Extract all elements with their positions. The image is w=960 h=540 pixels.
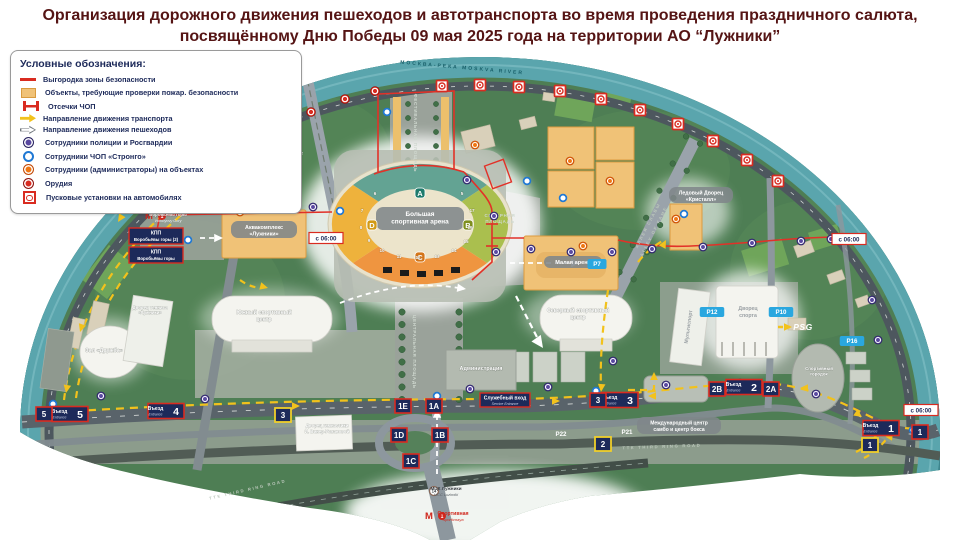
legend-item-label: Сотрудники полиции и Росгвардии (45, 138, 172, 147)
station-name-en: MCC Luzhniki (434, 492, 458, 497)
chop-marker (524, 178, 531, 185)
arena-gate-number: 16 (467, 225, 473, 230)
legend-item-label: Направление движения транспорта (43, 114, 173, 123)
time-badge: с 06:00 (904, 405, 938, 416)
admin-marker (606, 177, 614, 185)
zone-box-text: 1E (398, 402, 408, 411)
legend-item-label: Сотрудники (администраторы) на объектах (45, 165, 203, 174)
police-marker (544, 383, 552, 391)
building-south-sport-center (212, 296, 332, 342)
zone-box-text: 5 (42, 410, 47, 419)
chop-marker (185, 237, 192, 244)
zone-box-text: 2B (712, 385, 722, 394)
kpp-line2: Воробьёвы горы (2) (134, 237, 179, 242)
entrance-en: Entrance (148, 413, 162, 417)
launcher-marker (555, 86, 566, 97)
tree (405, 129, 410, 134)
police-marker (874, 336, 882, 344)
venue-label: Аквакомплекс«Лужники» (231, 221, 297, 238)
police-marker (492, 248, 500, 256)
entrance-en: Entrance (726, 389, 740, 393)
police-marker (201, 395, 209, 403)
route-box-text: 3 (281, 411, 286, 420)
kpp-line1: КПП (151, 231, 162, 237)
map-label: СЕВЕРНАЯПЛОЩАДЬ (484, 213, 515, 224)
station-name-en: Vorobyovy Gory (154, 219, 182, 223)
station-name-ru: МЦК Лужники (430, 486, 461, 491)
guns-icon (23, 178, 34, 189)
tree (399, 359, 405, 365)
parking-label-P7: P7 (588, 259, 607, 269)
parking-label-P16: P16 (840, 336, 865, 346)
time-badge-text: с 06:00 (316, 235, 338, 242)
entrance-box-4: ВъездEntrance4 (148, 404, 184, 419)
entrance-number: 5 (77, 409, 83, 421)
launcher-dot (559, 90, 561, 92)
police-marker (662, 381, 670, 389)
arena-gate-number: 10 (379, 248, 385, 253)
entrance-number: 3 (627, 395, 633, 407)
legend-item-label: Направление движения пешеходов (43, 125, 171, 134)
zone-box-5: 5 (36, 407, 52, 421)
tree (433, 129, 438, 134)
launcher-marker (475, 80, 486, 91)
legend-item: Сотрудники полиции и Росгвардии (20, 137, 292, 148)
tree (456, 334, 462, 340)
zone-box-3: 3 (590, 393, 606, 407)
launcher-marker (742, 155, 753, 166)
arena-sector-letter: D (369, 221, 375, 230)
chop-marker (560, 195, 567, 202)
entrance-number: 1 (888, 423, 894, 435)
service-ru: Служебный вход (484, 395, 527, 402)
launcher-dot (441, 85, 443, 87)
launcher-dot (479, 84, 481, 86)
map-label: ФЕСТИВАЛЬНАЯ ПЛОЩАДЬ (413, 94, 418, 172)
time-badge: с 06:00 (309, 233, 343, 244)
entrance-ru: Въезд (863, 423, 880, 429)
gun-marker (341, 95, 350, 104)
police-marker (97, 392, 105, 400)
security-line-icon (20, 74, 36, 84)
parking-text: P16 (846, 338, 858, 345)
luzhniki-traffic-scheme: Большаяспортивная аренаМалая аренаАквако… (0, 0, 960, 540)
arena-gate-number: 8 (360, 225, 363, 230)
route-box-2: 2 (595, 437, 611, 451)
map-label: PSG (793, 322, 812, 332)
chop-dot (524, 178, 531, 185)
zone-box-2B: 2B (709, 382, 725, 396)
map-label: Дворецспорта (738, 306, 758, 319)
police-marker (748, 239, 756, 247)
route-box-1: 1 (862, 438, 878, 452)
route-box-text: 2 (601, 440, 606, 449)
launcher-dot (518, 86, 520, 88)
time-badge-text: с 06:00 (839, 236, 861, 243)
tree (684, 168, 690, 174)
zone-box-text: 1B (435, 431, 445, 440)
zone-box-text: 1C (406, 457, 416, 466)
venue-label-text: «Лужники» (249, 231, 278, 237)
launcher-dot (600, 98, 602, 100)
legend-panel: Условные обозначения: Выгородка зоны без… (10, 50, 302, 214)
zone-box-1B: 1B (432, 428, 448, 442)
launcher-marker (596, 94, 607, 105)
route-box-3: 3 (275, 408, 291, 422)
kpp-box: КППВоробьёвы горы (2) (129, 228, 183, 244)
arena-gate-number: 14 (451, 248, 457, 253)
zone-box-text: 1A (429, 402, 439, 411)
zone-box-text: 3 (596, 396, 601, 405)
zone-box-1C: 1C (403, 454, 419, 468)
venue-label: Ледовый Дворец«Кристалл» (669, 187, 733, 203)
tree (399, 371, 405, 377)
legend-item-label: Орудия (45, 179, 72, 188)
time-badge: с 06:00 (832, 234, 866, 245)
venue-label-text: самбо и центр бокса (653, 426, 704, 433)
legend-item: Выгородка зоны безопасности (20, 74, 292, 84)
chop-marker (384, 109, 391, 116)
entrance-box-3: ВъездEntrance3 (602, 393, 638, 408)
tree (433, 143, 438, 148)
tree (657, 188, 663, 194)
entrance-box-2: ВъездEntrance2 (726, 380, 762, 395)
tree (399, 321, 405, 327)
map-label: Дворец гимнастикиИ. Винер-Усмановой (305, 423, 350, 434)
tree (405, 115, 410, 120)
entrance-box-5: ВъездEntrance5 (52, 407, 88, 422)
launcher-dot (746, 159, 748, 161)
admin-marker (579, 242, 587, 250)
police-marker (699, 243, 707, 251)
chop-cutoff-icon (23, 101, 39, 111)
admin-icon (23, 164, 34, 175)
chop-dot (681, 211, 688, 218)
building-north-sport-center (540, 295, 632, 341)
police-marker (868, 296, 876, 304)
tree (399, 334, 405, 340)
arena-sector-letter: A (417, 189, 423, 198)
map-label: Администрация (460, 366, 503, 372)
launchers-icon (23, 191, 36, 204)
arena-sector-D: D (367, 220, 377, 230)
chop-dot (337, 208, 344, 215)
launcher-dot (712, 140, 714, 142)
police-marker (609, 357, 617, 365)
chop-marker (337, 208, 344, 215)
launcher-marker (673, 119, 684, 130)
service-entrance-box: Служебный входService Entrance (480, 393, 530, 407)
arena-sector-A: A (415, 188, 425, 198)
legend-item-label: Сотрудники ЧОП «Стронго» (45, 152, 146, 161)
page-title-line2: посвящённому Дню Победы 09 мая 2025 года… (0, 26, 960, 47)
arena-gate-number: 11 (397, 254, 402, 259)
kpp-line2: Воробьёвы горы (137, 256, 175, 261)
tree (433, 115, 438, 120)
legend-item-label: Объекты, требующие проверки пожар. безоп… (45, 88, 238, 97)
legend-title: Условные обозначения: (20, 58, 292, 70)
building-sports-town (792, 344, 844, 412)
tree (683, 134, 689, 140)
chop-dot (560, 195, 567, 202)
zone-box-text: 2A (766, 385, 776, 394)
admin-marker (566, 157, 574, 165)
zone-box-text: 1 (918, 428, 923, 437)
parking-text: P10 (775, 309, 787, 316)
entrance-en: Entrance (52, 416, 66, 420)
launcher-marker (514, 82, 525, 93)
police-marker (466, 385, 474, 393)
legend-item: Отсечки ЧОП (20, 101, 292, 111)
map-label: Зал «Дружба» (85, 347, 123, 354)
gun-marker (371, 87, 380, 96)
police-marker (527, 245, 535, 253)
legend-item: Орудия (20, 178, 292, 189)
zone-box-2A: 2A (763, 382, 779, 396)
entrance-en: Entrance (863, 430, 877, 434)
parking-label-P21: P21 (621, 429, 633, 436)
arena-gate-number: 17 (469, 208, 475, 213)
chop-dot (384, 109, 391, 116)
tree (399, 384, 405, 390)
venue-label-text: Малая арена (555, 260, 591, 266)
tree (433, 101, 438, 106)
tree (405, 143, 410, 148)
police-marker (608, 248, 616, 256)
launcher-marker (437, 81, 448, 92)
parking-label-P10: P10 (769, 307, 794, 317)
zone-box-1D: 1D (391, 428, 407, 442)
transport-direction-icon (20, 114, 36, 123)
venue-label-text: спортивная арена (391, 218, 449, 225)
entrance-box-1: ВъездEntrance1 (863, 421, 899, 436)
parking-text: P22 (555, 431, 567, 438)
chop-marker (681, 211, 688, 218)
zone-box-text: 1D (394, 431, 404, 440)
legend-list: Выгородка зоны безопасностиОбъекты, треб… (20, 74, 292, 204)
venue-label-text: Большая (406, 211, 435, 218)
legend-item: Сотрудники ЧОП «Стронго» (20, 151, 292, 162)
time-badge-text: с 06:00 (911, 407, 933, 414)
venue-label-text: Аквакомплекс (245, 225, 283, 231)
admin-marker (471, 141, 479, 149)
tree (456, 321, 462, 327)
kpp-box: КППВоробьёвы горы (129, 247, 183, 263)
tree (697, 141, 703, 147)
police-marker (648, 245, 656, 253)
mcc-station-icon: 14МЦК ЛужникиMCC Luzhniki (430, 486, 462, 497)
arena-gate-number: 13 (434, 254, 440, 259)
police-marker (309, 203, 317, 211)
legend-item-label: Отсечки ЧОП (48, 102, 96, 111)
launcher-marker (635, 105, 646, 116)
zone-box-1E: 1E (395, 399, 411, 413)
parking-text: P7 (593, 261, 601, 268)
gun-marker (307, 108, 316, 117)
chop-dot (185, 237, 192, 244)
tree (456, 309, 462, 315)
police-icon (23, 137, 34, 148)
station-name-en: Sportivnaya (442, 517, 464, 522)
zone-box-1: 1 (912, 425, 928, 439)
page-title-line1: Организация дорожного движения пешеходов… (0, 5, 960, 26)
legend-item-label: Выгородка зоны безопасности (43, 75, 156, 84)
police-marker (812, 390, 820, 398)
chop-strongo-icon (23, 151, 34, 162)
route-box-text: 1 (868, 441, 873, 450)
tree (399, 309, 405, 315)
service-en: Service Entrance (492, 402, 519, 406)
page-title: Организация дорожного движения пешеходов… (0, 5, 960, 47)
arena-gate-number: 15 (463, 239, 469, 244)
fire-check-object-icon (21, 88, 36, 98)
entrance-number: 2 (751, 382, 757, 394)
police-marker (490, 212, 498, 220)
parking-label-P12: P12 (700, 307, 725, 317)
tree (399, 346, 405, 352)
legend-item: Пусковые установки на автомобилях (20, 191, 292, 204)
entrance-ru: Въезд (148, 406, 165, 412)
launcher-dot (777, 180, 779, 182)
venue-label: Большаяспортивная арена (376, 207, 464, 230)
arena-gate-number: 9 (368, 238, 371, 243)
launcher-marker (773, 176, 784, 187)
entrance-ru: Въезд (52, 409, 69, 415)
tree (631, 277, 637, 283)
arena-gate-number: 6 (374, 191, 377, 196)
launcher-dot (677, 123, 679, 125)
arena-gate-number: 5 (461, 191, 464, 196)
building-sports-palace (716, 286, 778, 358)
tree (405, 101, 410, 106)
map-label: ЦЕНТРАЛЬНАЯ ПЛОЩАДЬ (412, 315, 417, 389)
police-marker (797, 237, 805, 245)
launcher-marker (708, 136, 719, 147)
venue-label-text: Ледовый Дворец (679, 190, 724, 197)
parking-text: P21 (621, 429, 633, 436)
legend-item: Направление движения транспорта (20, 114, 292, 123)
police-marker (463, 176, 471, 184)
legend-item: Объекты, требующие проверки пожар. безоп… (20, 87, 292, 99)
metro-m-logo: М (425, 511, 433, 522)
legend-item-label: Пусковые установки на автомобилях (46, 193, 182, 202)
venue-label: Международный центрсамбо и центр бокса (637, 417, 721, 434)
admin-marker (672, 215, 680, 223)
tree (670, 161, 676, 167)
legend-item: Сотрудники (администраторы) на объектах (20, 164, 292, 175)
arena-gate-number: 7 (361, 208, 364, 213)
pedestrian-direction-icon (20, 125, 36, 134)
zone-box-1A: 1A (426, 399, 442, 413)
police-marker (567, 248, 575, 256)
legend-item: Направление движения пешеходов (20, 125, 292, 134)
launcher-dot (639, 109, 641, 111)
venue-label-text: «Кристалл» (686, 197, 716, 203)
entrance-ru: Въезд (726, 382, 743, 388)
parking-text: P12 (706, 309, 718, 316)
entrance-number: 4 (173, 406, 179, 418)
metro-station-icon: М1СпортивнаяSportivnaya (425, 511, 469, 522)
venue-label-text: Международный центр (650, 420, 708, 427)
kpp-line1: КПП (151, 250, 162, 256)
arena-gate-number: 12 (415, 255, 421, 260)
parking-label-P22: P22 (555, 431, 567, 438)
